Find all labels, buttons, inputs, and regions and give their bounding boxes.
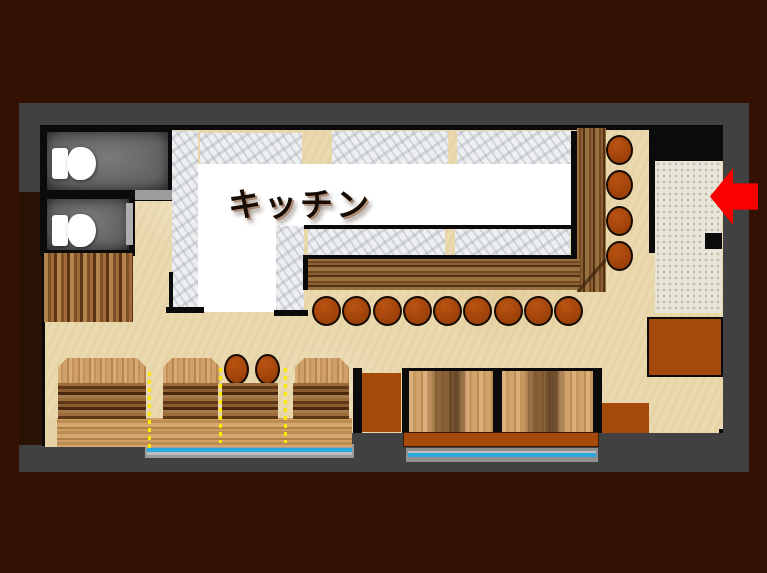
bar-counter-horizontal <box>308 259 580 290</box>
kitchen-counter-mid <box>276 226 304 310</box>
floor-stool-pair <box>224 354 280 385</box>
counter-stool-column <box>606 135 633 271</box>
booth-bench <box>45 418 352 447</box>
low-table-1 <box>409 368 493 432</box>
floor-plan: キッチン <box>0 0 767 573</box>
toilet-bowl <box>67 147 96 180</box>
stool <box>373 296 402 326</box>
low-table-2 <box>502 368 593 432</box>
booth-seatback-3 <box>222 383 278 419</box>
side-table <box>44 253 133 322</box>
stool <box>403 296 432 326</box>
entry-door-mark <box>705 233 722 249</box>
wall-end-mark <box>719 429 723 433</box>
toilet-bowl <box>67 214 96 247</box>
service-cabinet-right <box>602 403 649 433</box>
kitchen-counter-left <box>172 131 198 310</box>
kitchen-wall-stub-left-v <box>169 272 173 313</box>
booth-table-2 <box>163 358 220 384</box>
entrance-door-right <box>406 448 598 462</box>
kitchen-counter-row2-1 <box>308 229 445 256</box>
bar-counter-miter-joint <box>577 259 606 292</box>
stool <box>494 296 523 326</box>
entrance-door-right-glass <box>408 453 596 457</box>
stool <box>463 296 492 326</box>
kitchen-counter-top-2 <box>332 131 448 165</box>
toilet-icon <box>52 147 98 181</box>
stool <box>312 296 341 326</box>
table-partition-1 <box>402 368 409 433</box>
toilet-tank <box>52 148 68 179</box>
kitchen-counter-row2-2 <box>455 229 570 256</box>
entry-closet <box>652 128 723 161</box>
table-partition-3 <box>593 368 602 433</box>
booth-seatback-1 <box>58 383 146 419</box>
entry-counter <box>647 317 723 377</box>
entrance-door-left-sill <box>147 452 352 455</box>
booth-divider-line-2 <box>219 368 222 443</box>
stool <box>554 296 583 326</box>
stool <box>342 296 371 326</box>
booth-divider-line-3 <box>284 368 287 443</box>
stool <box>433 296 462 326</box>
booth-bench-endcap <box>45 418 57 447</box>
booth-divider-line-1 <box>148 372 151 448</box>
restroom-stall-2-door <box>126 203 133 245</box>
kitchen-counter-top-3 <box>457 131 571 165</box>
stool <box>606 206 633 236</box>
stool <box>255 354 280 385</box>
kitchen-counter-top-1 <box>200 133 302 165</box>
window-bench <box>403 432 599 447</box>
booth-table-4 <box>295 358 349 384</box>
stool <box>606 135 633 165</box>
booth-seatback-4 <box>293 383 349 419</box>
booth-seatback-2 <box>163 383 218 419</box>
booth-table-1 <box>58 358 146 384</box>
stool <box>524 296 553 326</box>
kitchen-label: キッチン <box>228 178 372 226</box>
table-partition-2 <box>493 368 502 433</box>
restroom-step <box>135 190 172 200</box>
counter-stool-row <box>312 296 583 326</box>
toilet-icon <box>52 214 98 248</box>
toilet-tank <box>52 215 68 246</box>
service-cabinet-left <box>362 373 401 432</box>
booth-end-wall <box>353 368 362 433</box>
stool <box>224 354 249 385</box>
stool <box>606 170 633 200</box>
stool <box>606 241 633 271</box>
kitchen-wall-stub-right <box>274 310 308 316</box>
